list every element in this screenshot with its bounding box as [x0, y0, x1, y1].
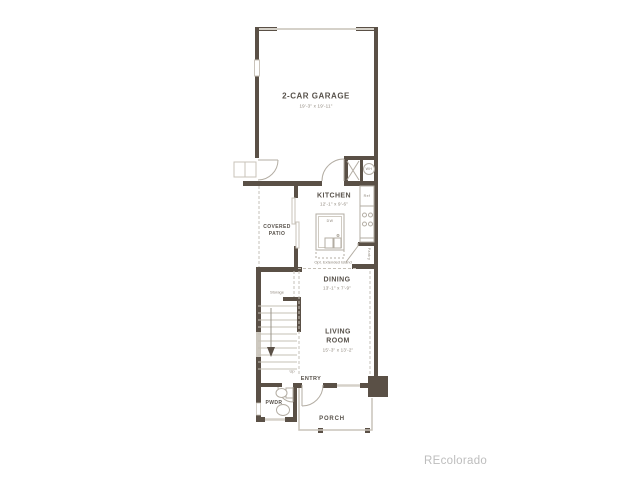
dining-dims: 13'-1" x 7'-9"	[323, 286, 351, 291]
garage-dims: 19'-3" x 19'-11"	[299, 104, 332, 109]
pwdr-label: PWDR	[266, 400, 283, 406]
pwdr-side-window	[257, 403, 261, 415]
patio-right-wall-upper	[294, 186, 298, 198]
utility-closet-divider	[360, 158, 363, 182]
pwdr-top-wall	[256, 383, 282, 387]
porch-label: PORCH	[319, 416, 345, 422]
toilet	[276, 388, 293, 398]
patio-slider-panel-1	[292, 198, 295, 224]
front-wall-left	[323, 383, 337, 388]
patio-bottom-wall	[256, 267, 302, 272]
refrigerator-label: Ref	[364, 194, 371, 198]
front-corner-block	[368, 376, 388, 397]
pantry-label: Pantry	[367, 248, 371, 261]
up-label: Up	[289, 369, 294, 374]
island-faucet	[337, 235, 339, 237]
left-exterior-wall-upper	[256, 267, 261, 332]
left-exterior-wall-lower	[256, 357, 261, 383]
living-room-dims: 15'-3" x 13'-2"	[323, 348, 354, 353]
kitchen-dims: 12'-1" x 9'-6"	[320, 202, 348, 207]
garage-side-window	[255, 60, 260, 76]
stove-burner	[369, 222, 373, 226]
garage-kitchen-wall-left	[243, 181, 322, 186]
patio-slider-panel-2	[296, 222, 299, 248]
kitchen-label: KITCHEN	[317, 193, 351, 200]
floor-plan-canvas: 2-CAR GARAGE 19'-3" x 19'-11" KITCHEN 12…	[0, 0, 640, 480]
right-exterior-wall	[374, 27, 378, 379]
dining-label: DINING	[324, 277, 351, 284]
pantry-top-wall	[358, 242, 378, 246]
utility-closet-left-wall	[344, 156, 348, 182]
pwdr-bottom-wall-left	[256, 417, 265, 422]
stove-burner	[363, 213, 367, 217]
entry-label: ENTRY	[301, 376, 321, 382]
patio-right-wall-lower	[294, 246, 298, 267]
garage-side-door	[258, 160, 278, 180]
floor-plan-drawing	[0, 0, 640, 480]
porch-outline	[299, 388, 372, 430]
pwdr-sink	[277, 405, 290, 416]
water-heater-label: WH	[366, 167, 373, 171]
covered-patio-label-line1: COVERED	[263, 224, 291, 230]
entry-wall-stub	[297, 383, 302, 388]
garage-to-kitchen-door	[322, 159, 344, 181]
garage-left-wall-lower	[255, 76, 259, 158]
staircase	[258, 306, 297, 369]
stove-burner	[363, 222, 367, 226]
front-entry-door	[302, 385, 323, 406]
optional-island-extension	[316, 250, 344, 258]
optional-island-label: Opt. Extended Island	[314, 260, 351, 265]
stair-wall-window	[256, 332, 261, 357]
dishwasher-label: DW	[327, 219, 334, 223]
garage-left-wall-upper	[255, 27, 259, 60]
covered-patio-label-line2: PATIO	[269, 231, 286, 237]
utility-closet-bifold	[347, 161, 359, 180]
watermark: REcolorado	[424, 455, 487, 467]
living-room-label-line2: ROOM	[326, 338, 349, 345]
pwdr-right-wall	[293, 383, 297, 422]
pwdr-bottom-wall-right	[285, 417, 297, 422]
storage-label: Storage	[270, 290, 284, 295]
living-room-label-line1: LIVING	[325, 329, 351, 336]
garage-label: 2-CAR GARAGE	[282, 92, 350, 101]
stove-burner	[369, 213, 373, 217]
